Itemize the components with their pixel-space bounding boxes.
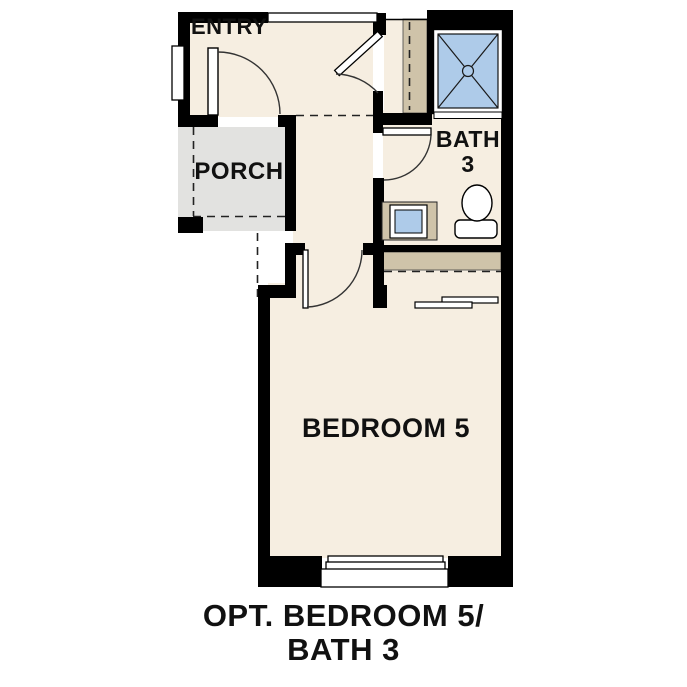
porch-room-label: PORCH xyxy=(193,158,285,186)
coat-closet-shelf xyxy=(403,19,427,113)
bath-door-leaf xyxy=(383,128,431,135)
entry-room-label: ENTRY xyxy=(191,14,267,40)
wall-entry-porch-left xyxy=(178,115,218,127)
entry-top-window xyxy=(268,13,377,22)
sliding-door-panel-front xyxy=(415,302,472,308)
wall-porch-right xyxy=(285,127,296,231)
plan-caption: OPT. BEDROOM 5/BATH 3 xyxy=(0,599,687,667)
bath-label-line1: BATH xyxy=(436,126,500,152)
caption-line1: OPT. BEDROOM 5/ xyxy=(203,598,484,633)
caption-line2: BATH 3 xyxy=(287,632,400,667)
wall-bedroom-bottom-right xyxy=(448,556,513,587)
shower-curb xyxy=(434,112,502,119)
shower-drain xyxy=(463,66,474,77)
wall-porch-corner-block xyxy=(178,217,203,233)
bath-label-line2: 3 xyxy=(461,151,474,177)
wall-bedroom-bottom-left xyxy=(258,556,322,587)
wall-closet-bottom xyxy=(375,113,432,125)
floor-plan-drawing xyxy=(0,0,687,687)
floor-plan: ENTRY PORCH BATH3 BEDROOM 5 OPT. BEDROOM… xyxy=(0,0,687,687)
bath-room-label: BATH3 xyxy=(433,127,503,177)
vanity-sink-icon xyxy=(382,202,437,240)
hall-floor xyxy=(293,110,373,256)
bedroom-window xyxy=(321,556,448,587)
bedroom-closet-shelf xyxy=(383,252,501,270)
coat-closet-floor xyxy=(384,19,403,114)
bedroom-room-label: BEDROOM 5 xyxy=(258,413,514,444)
wall-entry-porch-right xyxy=(278,115,296,127)
wall-bath-bottom xyxy=(373,245,513,252)
shower-icon xyxy=(433,29,503,119)
wall-closet-corner xyxy=(373,285,387,308)
entry-door-leaf xyxy=(208,48,218,115)
wall-hall-bath-upper xyxy=(373,91,383,133)
bedroom-door-leaf xyxy=(303,250,308,308)
entry-side-window xyxy=(172,46,184,100)
